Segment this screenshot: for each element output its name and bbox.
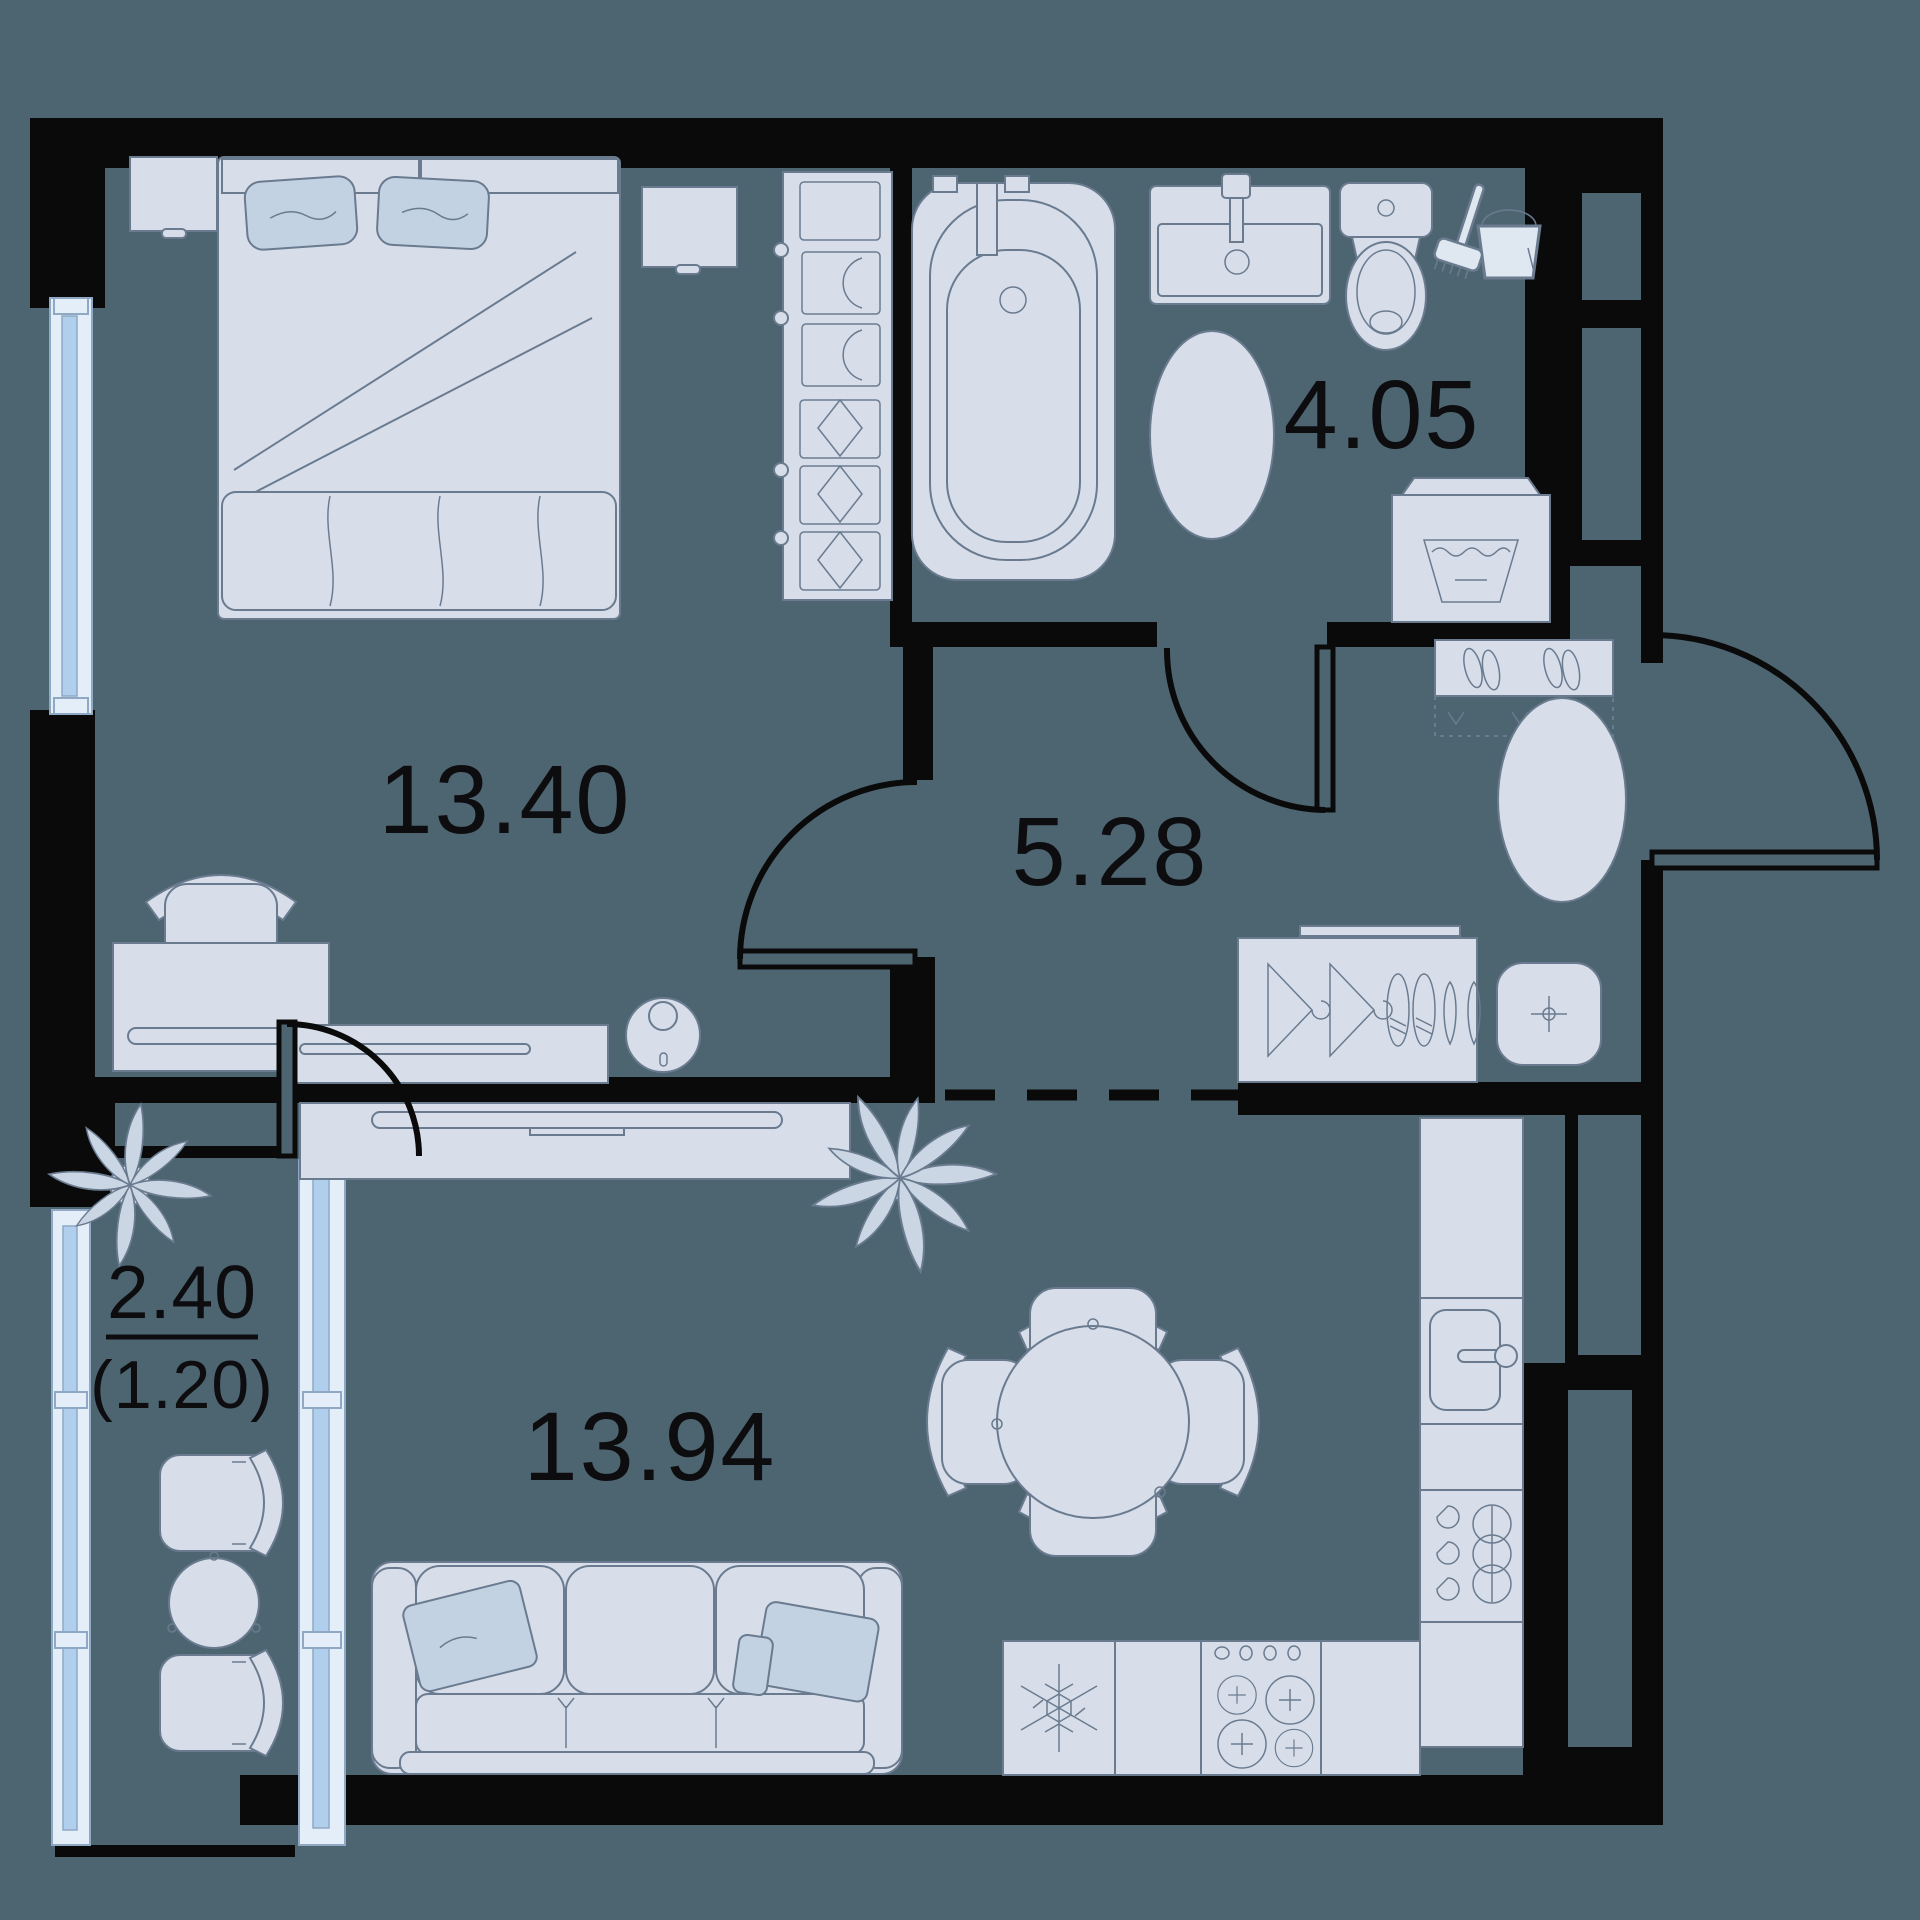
floor-plan-canvas: 13.40 4.05 5.28 13.94 2.40 (1.20) (0, 0, 1920, 1920)
wardrobe-handle (774, 463, 788, 477)
mop-bucket-icon (1430, 178, 1540, 282)
cooktop-burners-icon (1201, 1641, 1321, 1775)
balcony-bottom-rail (55, 1845, 295, 1857)
door-swing-arc (1652, 635, 1877, 860)
door-swing-arc (1167, 648, 1325, 810)
kitchen-cabinet (1420, 1118, 1523, 1298)
kitchen-counter (1420, 1622, 1523, 1747)
kitchen-counter (1115, 1641, 1201, 1775)
tv-stand (300, 1103, 850, 1179)
balcony-chair (160, 1650, 283, 1756)
balcony-reduced-area-label: (1.20) (90, 1347, 274, 1423)
bedroom-area-label: 13.40 (379, 745, 632, 854)
bathroom-sink (1150, 174, 1330, 304)
vent-shaft (1578, 1115, 1641, 1355)
bedroom-door (740, 782, 917, 967)
dining-set (927, 1288, 1259, 1556)
toilet (1340, 183, 1432, 350)
balcony-area-label: 2.40 (107, 1250, 257, 1334)
wardrobe-handle (774, 531, 788, 545)
pillow (376, 176, 489, 250)
kitchen-counter (1420, 1424, 1523, 1490)
bedroom-window (50, 298, 92, 714)
living-kitchen-area-label: 13.94 (524, 1392, 777, 1501)
wardrobe-handle (774, 311, 788, 325)
sofa (372, 1562, 902, 1774)
balcony-left-window (52, 1210, 90, 1845)
closet-hangers (1238, 926, 1480, 1082)
floor-plan: 13.40 4.05 5.28 13.94 2.40 (1.20) (0, 0, 1920, 1920)
kitchen-appliance (1420, 1490, 1523, 1622)
pouf (1497, 963, 1601, 1065)
balcony-chair (160, 1450, 283, 1556)
bed-foot-blanket (222, 492, 616, 610)
bathroom-area-label: 4.05 (1284, 360, 1481, 469)
pillow (244, 175, 358, 251)
robot-vacuum-icon (626, 998, 700, 1072)
vent-shaft (1582, 328, 1641, 540)
wardrobe-shelves (774, 172, 892, 600)
wardrobe-handle (774, 243, 788, 257)
bath-rug (1150, 331, 1274, 539)
nightstand (642, 187, 737, 274)
balcony-table (169, 1558, 259, 1648)
vent-shaft (1582, 193, 1641, 300)
balcony-inner-window (299, 1160, 345, 1845)
bathtub (912, 176, 1115, 580)
vent-shaft (1568, 1390, 1632, 1745)
hallway-area-label: 5.28 (1012, 797, 1209, 906)
nightstand (130, 157, 217, 238)
kitchen-sink (1420, 1298, 1523, 1424)
washing-machine-icon (1392, 478, 1550, 622)
tv (372, 1112, 782, 1128)
kitchen-counter (1321, 1641, 1420, 1775)
hallway-rug (1498, 698, 1626, 902)
fridge-snowflake-icon (1003, 1641, 1115, 1775)
double-bed (218, 157, 620, 619)
entrance-door (1652, 635, 1877, 868)
door-swing-arc (740, 782, 917, 959)
dining-table (997, 1326, 1189, 1518)
bathroom-door (1167, 647, 1333, 810)
